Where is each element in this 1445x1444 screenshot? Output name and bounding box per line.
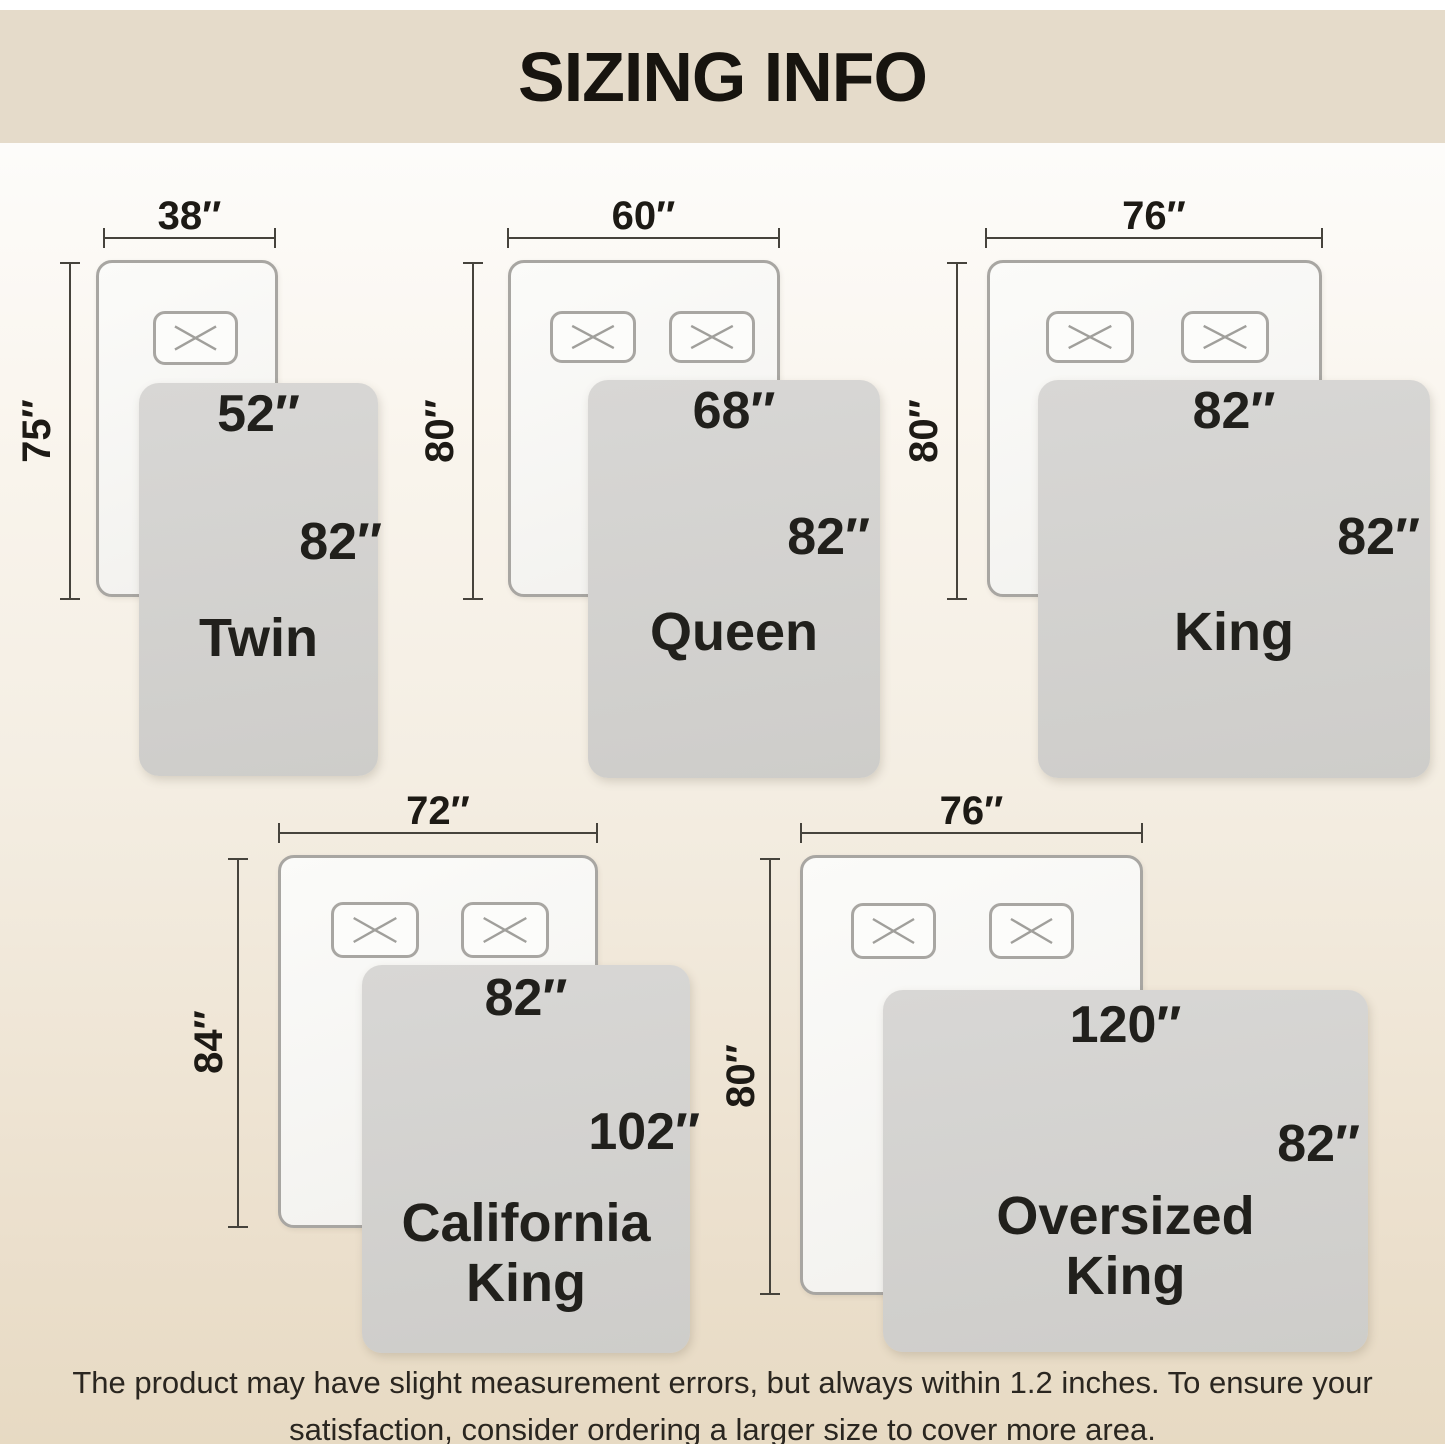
sizing-info-infographic: SIZING INFO 38″ 75″ 52″ 82″ Twin 60″ 80″ (0, 0, 1445, 1444)
page-background (0, 143, 1445, 1444)
disclaimer-text: The product may have slight measurement … (0, 1360, 1445, 1444)
disclaimer-line-1: The product may have slight measurement … (0, 1360, 1445, 1407)
disclaimer-line-2: satisfaction, consider ordering a larger… (0, 1407, 1445, 1444)
header-band: SIZING INFO (0, 10, 1445, 143)
page-title: SIZING INFO (518, 37, 927, 117)
